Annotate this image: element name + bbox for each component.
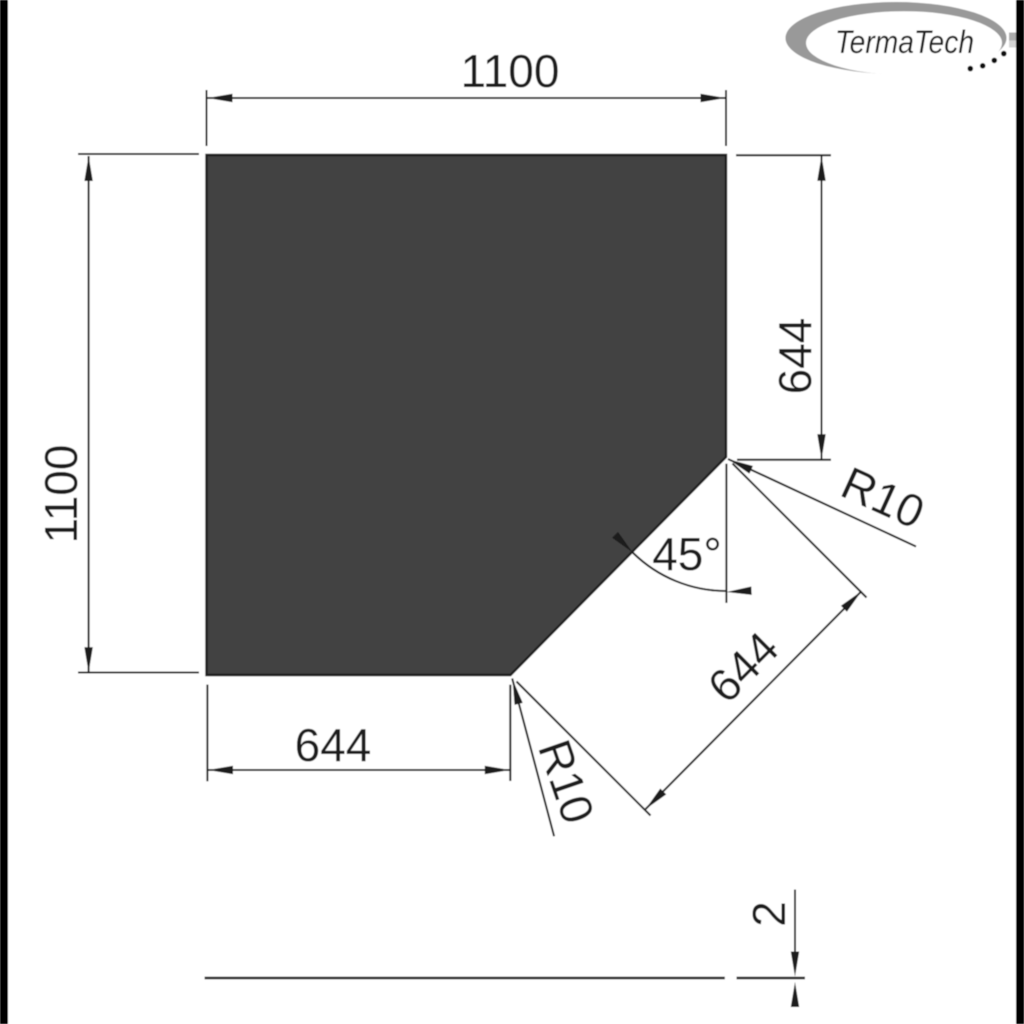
svg-text:644: 644 xyxy=(769,318,821,395)
svg-text:1100: 1100 xyxy=(461,45,560,97)
svg-text:1100: 1100 xyxy=(35,445,87,544)
svg-text:TermaTech: TermaTech xyxy=(835,24,974,60)
svg-text:45°: 45° xyxy=(652,528,722,580)
svg-text:644: 644 xyxy=(295,719,372,771)
svg-text:2: 2 xyxy=(743,901,795,927)
